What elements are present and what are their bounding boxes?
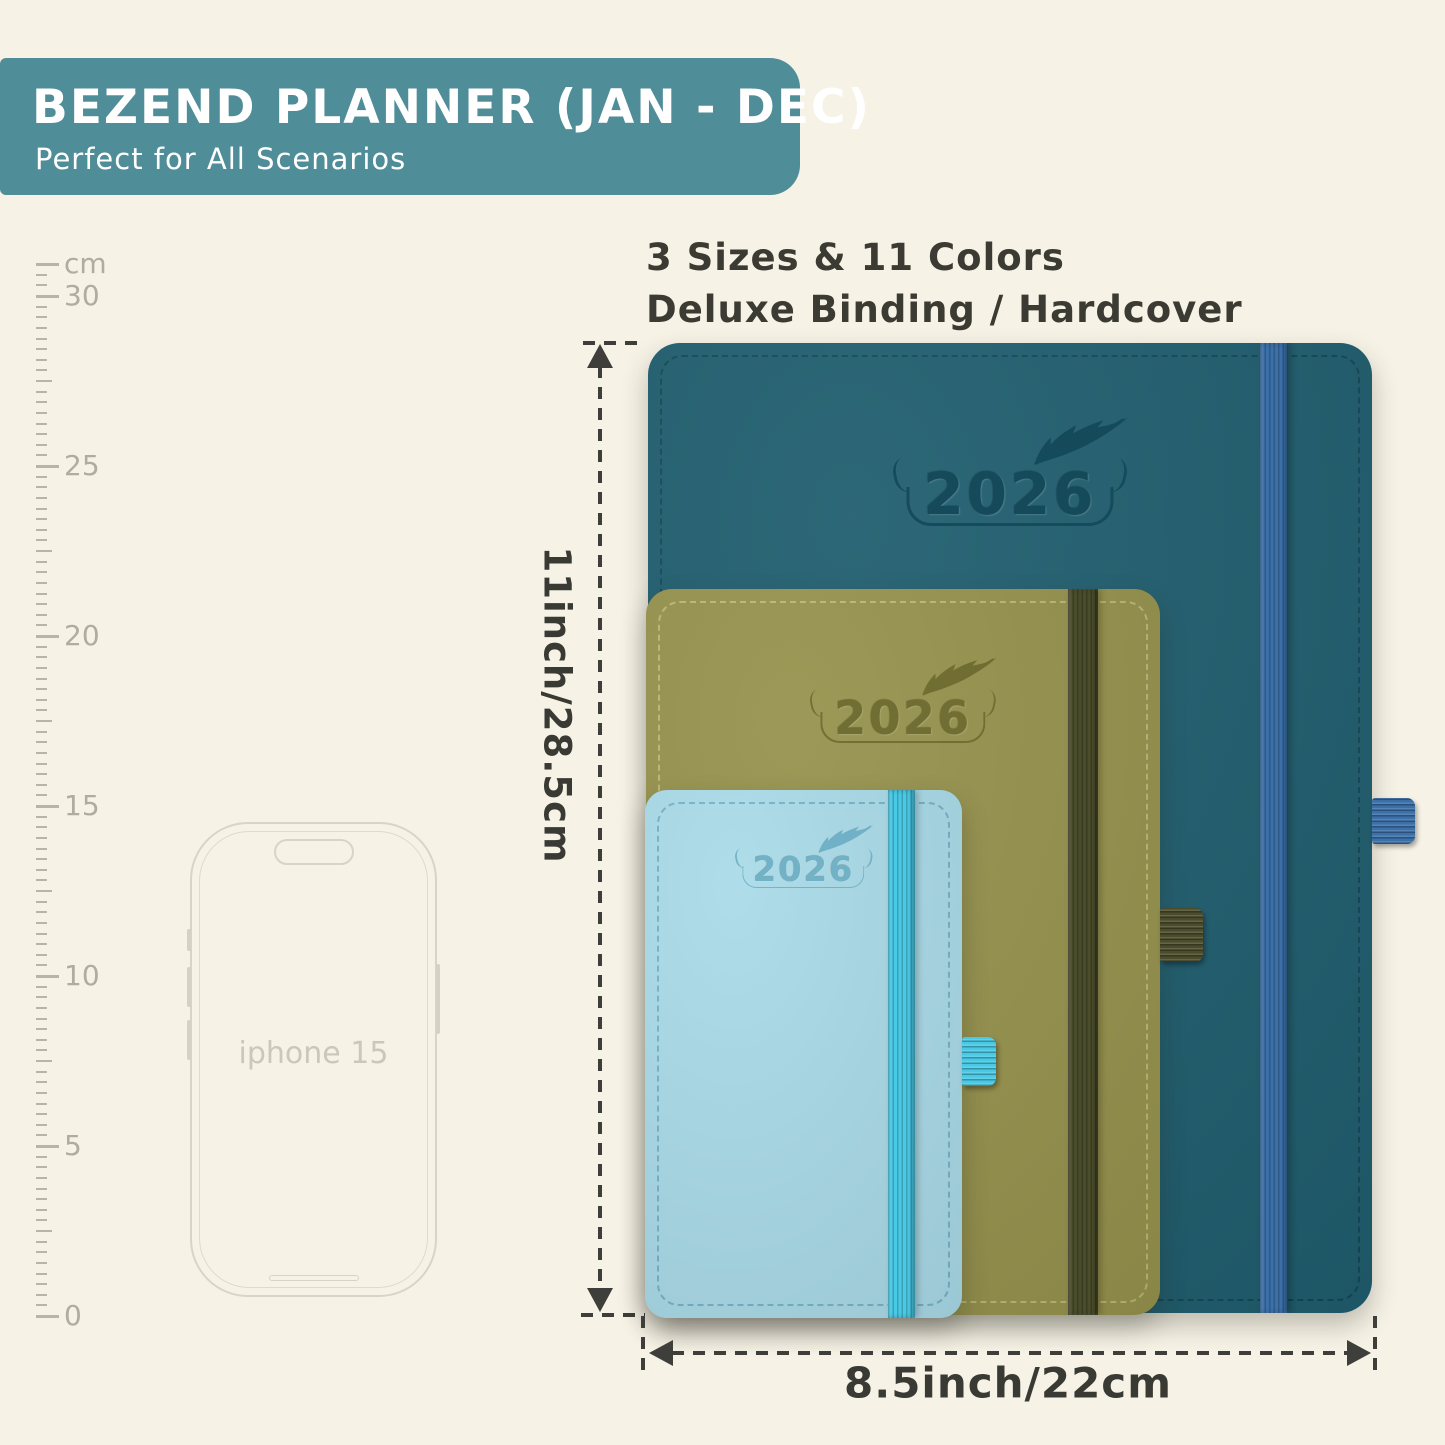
- ruler-tick: [36, 1294, 47, 1296]
- ruler-tick: [36, 773, 47, 775]
- ruler-tick: [36, 476, 47, 478]
- ruler-tick: [36, 316, 47, 318]
- logo-bracket: [743, 866, 865, 888]
- planner-small-cover: 2026: [645, 790, 962, 1318]
- ruler-tick: [36, 518, 47, 520]
- ruler-tick: [36, 678, 47, 680]
- ruler-tick: [36, 444, 47, 446]
- ruler-tick: [36, 858, 47, 860]
- ruler-tick: [36, 848, 47, 850]
- ruler-tick: [36, 497, 47, 499]
- ruler-number-label: 20: [64, 619, 100, 652]
- arrow-right-icon: [1347, 1340, 1371, 1366]
- ruler-tick: [36, 869, 47, 871]
- ruler-tick: [36, 1018, 47, 1020]
- ruler-tick: [36, 454, 47, 456]
- ruler-tick: [36, 327, 47, 329]
- ruler-tick: [36, 1209, 47, 1211]
- ruler-tick: [36, 1315, 59, 1318]
- ruler-tick: [36, 1071, 47, 1073]
- ruler-tick: [36, 1251, 47, 1253]
- ruler-tick: [36, 1283, 47, 1285]
- ruler-tick: [36, 1060, 52, 1062]
- ruler-tick: [36, 911, 47, 913]
- ruler-tick: [36, 561, 47, 563]
- ruler-tick: [36, 1262, 47, 1264]
- ruler-tick: [36, 1273, 47, 1275]
- ruler-tick: [36, 263, 59, 266]
- ruler-tick: [36, 1113, 47, 1115]
- ruler-tick: [36, 805, 59, 808]
- elastic-band: [888, 790, 915, 1318]
- ruler-tick: [36, 1039, 47, 1041]
- ruler-tick: [36, 348, 47, 350]
- ruler-tick: [36, 1177, 47, 1179]
- width-dimension-label: 8.5inch/22cm: [844, 1359, 1172, 1408]
- ruler-tick: [36, 486, 47, 488]
- ruler-tick: [36, 391, 47, 393]
- arrow-left-icon: [649, 1340, 673, 1366]
- ruler-tick: [36, 529, 47, 531]
- elastic-band: [1260, 343, 1288, 1313]
- ruler-tick: [36, 306, 47, 308]
- ruler-tick: [36, 624, 47, 626]
- phone-button-left-1: [187, 929, 191, 951]
- height-dimension-label: 11inch/28.5cm: [536, 546, 579, 863]
- ruler-tick: [36, 274, 47, 276]
- pen-loop: [1160, 908, 1203, 962]
- ruler-tick: [36, 1166, 47, 1168]
- ruler-tick: [36, 901, 47, 903]
- ruler-tick: [36, 890, 52, 892]
- ruler-tick: [36, 826, 47, 828]
- ruler-tick: [36, 412, 47, 414]
- ruler-tick: [36, 582, 47, 584]
- ruler-tick: [36, 1049, 47, 1051]
- ruler-number-label: 0: [64, 1299, 82, 1332]
- ruler-tick: [36, 688, 47, 690]
- ruler-tick: [36, 699, 47, 701]
- logo-bracket: [821, 712, 986, 743]
- ruler-tick: [36, 571, 47, 573]
- ruler-tick: [36, 550, 52, 552]
- dimension-extent-left: [641, 1316, 645, 1372]
- ruler-tick: [36, 1188, 47, 1190]
- ruler-tick: [36, 752, 47, 754]
- ruler-tick: [36, 1241, 47, 1243]
- planner-logo: 2026: [834, 695, 971, 741]
- ruler-tick: [36, 964, 47, 966]
- phone-dynamic-island: [274, 839, 354, 865]
- planner-small: 2026: [645, 790, 962, 1318]
- height-dimension-line: [598, 366, 602, 1290]
- arrow-down-icon: [587, 1288, 613, 1312]
- phone-bottom-bar: [269, 1275, 359, 1281]
- ruler-tick: [36, 709, 47, 711]
- ruler-tick: [36, 1145, 59, 1148]
- logo-bracket: [906, 487, 1114, 526]
- ruler-tick: [36, 1028, 47, 1030]
- ruler-tick: [36, 1304, 47, 1306]
- ruler-tick: [36, 635, 59, 638]
- phone-button-left-2: [187, 967, 191, 1007]
- ruler-tick: [36, 731, 47, 733]
- ruler-tick: [36, 1103, 47, 1105]
- ruler-tick: [36, 1092, 47, 1094]
- dimension-stub-bottom: [581, 1313, 645, 1317]
- ruler-tick: [36, 646, 47, 648]
- planner-logo: 2026: [753, 853, 854, 887]
- ruler-unit-label: cm: [64, 247, 107, 280]
- ruler-tick: [36, 986, 47, 988]
- ruler-tick: [36, 369, 47, 371]
- ruler-tick: [36, 954, 47, 956]
- ruler-number-label: 10: [64, 959, 100, 992]
- pen-loop: [962, 1037, 996, 1086]
- ruler-tick: [36, 593, 47, 595]
- ruler-tick: [36, 380, 52, 382]
- ruler-tick: [36, 423, 47, 425]
- ruler-tick: [36, 922, 47, 924]
- phone-label: iphone 15: [192, 1036, 435, 1071]
- ruler-tick: [36, 1198, 47, 1200]
- ruler-tick: [36, 433, 47, 435]
- ruler-tick: [36, 338, 47, 340]
- ruler-tick: [36, 794, 47, 796]
- ruler: 051015202530cm: [0, 0, 140, 1445]
- ruler-tick: [36, 401, 47, 403]
- ruler-tick: [36, 879, 47, 881]
- pen-loop: [1372, 798, 1415, 844]
- ruler-tick: [36, 763, 47, 765]
- ruler-tick: [36, 1124, 47, 1126]
- ruler-number-label: 5: [64, 1129, 82, 1162]
- ruler-tick: [36, 943, 47, 945]
- ruler-tick: [36, 784, 47, 786]
- ruler-tick: [36, 667, 47, 669]
- planner-logo: 2026: [923, 465, 1096, 523]
- ruler-tick: [36, 465, 59, 468]
- width-dimension-line: [672, 1351, 1350, 1355]
- ruler-tick: [36, 816, 47, 818]
- dimension-extent-right: [1373, 1316, 1377, 1374]
- product-image: BEZEND PLANNER (JAN - DEC) Perfect for A…: [0, 0, 1445, 1445]
- arrow-up-icon: [587, 344, 613, 368]
- ruler-tick: [36, 975, 59, 978]
- ruler-tick: [36, 741, 47, 743]
- ruler-tick: [36, 1007, 47, 1009]
- phone-outline: iphone 15: [190, 822, 437, 1297]
- ruler-tick: [36, 1134, 47, 1136]
- ruler-tick: [36, 295, 59, 298]
- ruler-tick: [36, 933, 47, 935]
- ruler-tick: [36, 837, 47, 839]
- ruler-tick: [36, 539, 47, 541]
- ruler-tick: [36, 614, 47, 616]
- ruler-tick: [36, 1230, 52, 1232]
- ruler-tick: [36, 603, 47, 605]
- ruler-number-label: 30: [64, 279, 100, 312]
- ruler-tick: [36, 508, 47, 510]
- ruler-tick: [36, 359, 47, 361]
- ruler-tick: [36, 996, 47, 998]
- phone-button-left-3: [187, 1020, 191, 1060]
- ruler-tick: [36, 284, 47, 286]
- ruler-tick: [36, 720, 52, 722]
- ruler-number-label: 15: [64, 789, 100, 822]
- banner-title: BEZEND PLANNER (JAN - DEC): [32, 80, 871, 135]
- ruler-tick: [36, 1219, 47, 1221]
- ruler-tick: [36, 1156, 47, 1158]
- headline-sizes-colors: 3 Sizes & 11 Colors: [646, 236, 1065, 279]
- ruler-tick: [36, 1081, 47, 1083]
- phone-button-right: [436, 964, 440, 1034]
- ruler-number-label: 25: [64, 449, 100, 482]
- elastic-band: [1068, 589, 1098, 1315]
- headline-binding: Deluxe Binding / Hardcover: [646, 288, 1243, 331]
- ruler-tick: [36, 656, 47, 658]
